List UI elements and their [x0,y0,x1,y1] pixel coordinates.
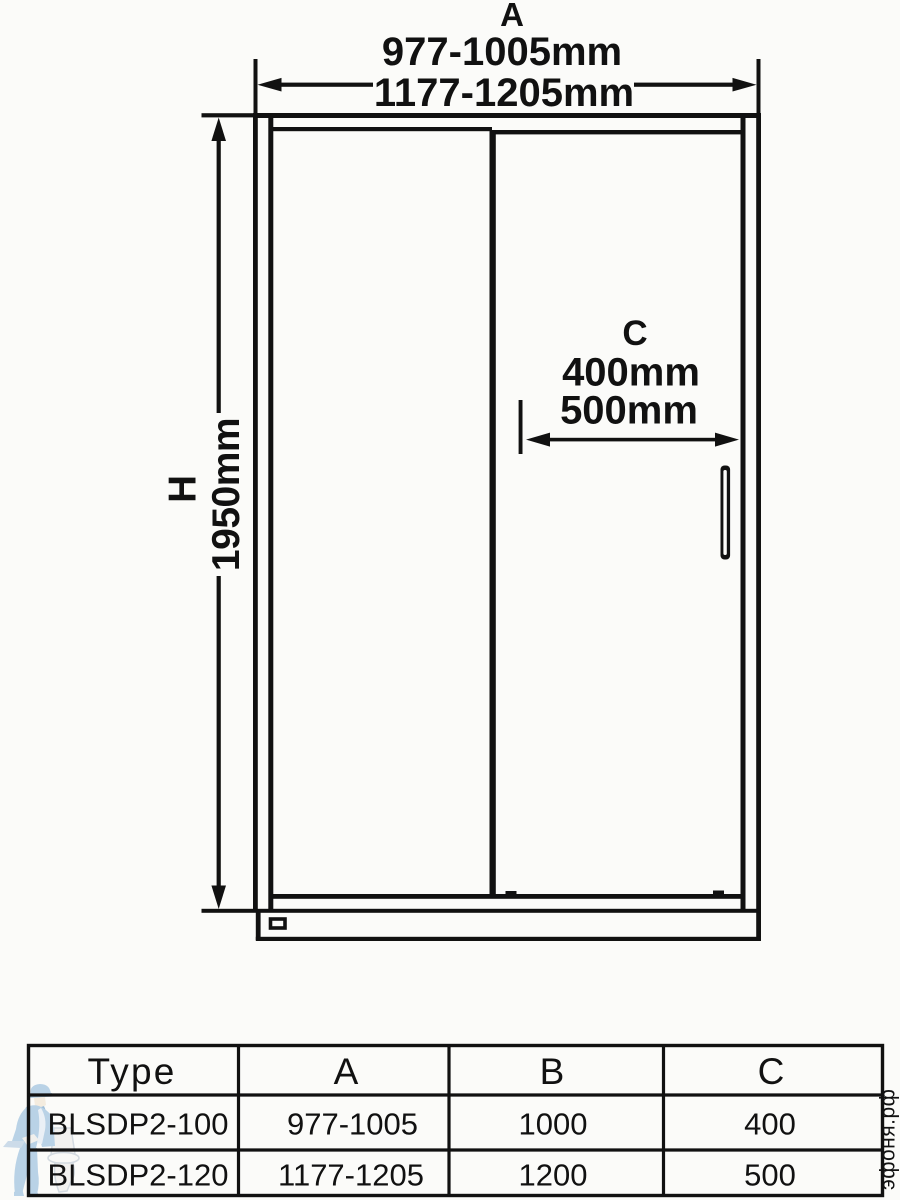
svg-text:BLSDP2-120: BLSDP2-120 [48,1158,229,1193]
svg-text:977-1005mm: 977-1005mm [382,30,622,74]
svg-text:C: C [622,314,647,353]
svg-text:C: C [758,1051,785,1092]
svg-text:1177-1205: 1177-1205 [278,1158,424,1193]
svg-text:1177-1205mm: 1177-1205mm [374,71,634,115]
svg-text:1950mm: 1950mm [205,418,248,571]
svg-text:1000: 1000 [519,1107,588,1142]
svg-text:BLSDP2-100: BLSDP2-100 [48,1107,229,1142]
svg-text:500mm: 500mm [560,389,698,433]
svg-text:400: 400 [744,1107,796,1142]
svg-text:эфоня.рф: эфоня.рф [877,1089,900,1190]
svg-text:B: B [540,1051,565,1092]
svg-text:Type: Type [87,1051,176,1092]
svg-text:1200: 1200 [519,1158,588,1193]
svg-text:500: 500 [744,1158,796,1193]
svg-text:H: H [162,475,205,503]
svg-text:A: A [334,1051,359,1092]
svg-text:977-1005: 977-1005 [287,1107,418,1142]
svg-text:A: A [500,0,524,33]
